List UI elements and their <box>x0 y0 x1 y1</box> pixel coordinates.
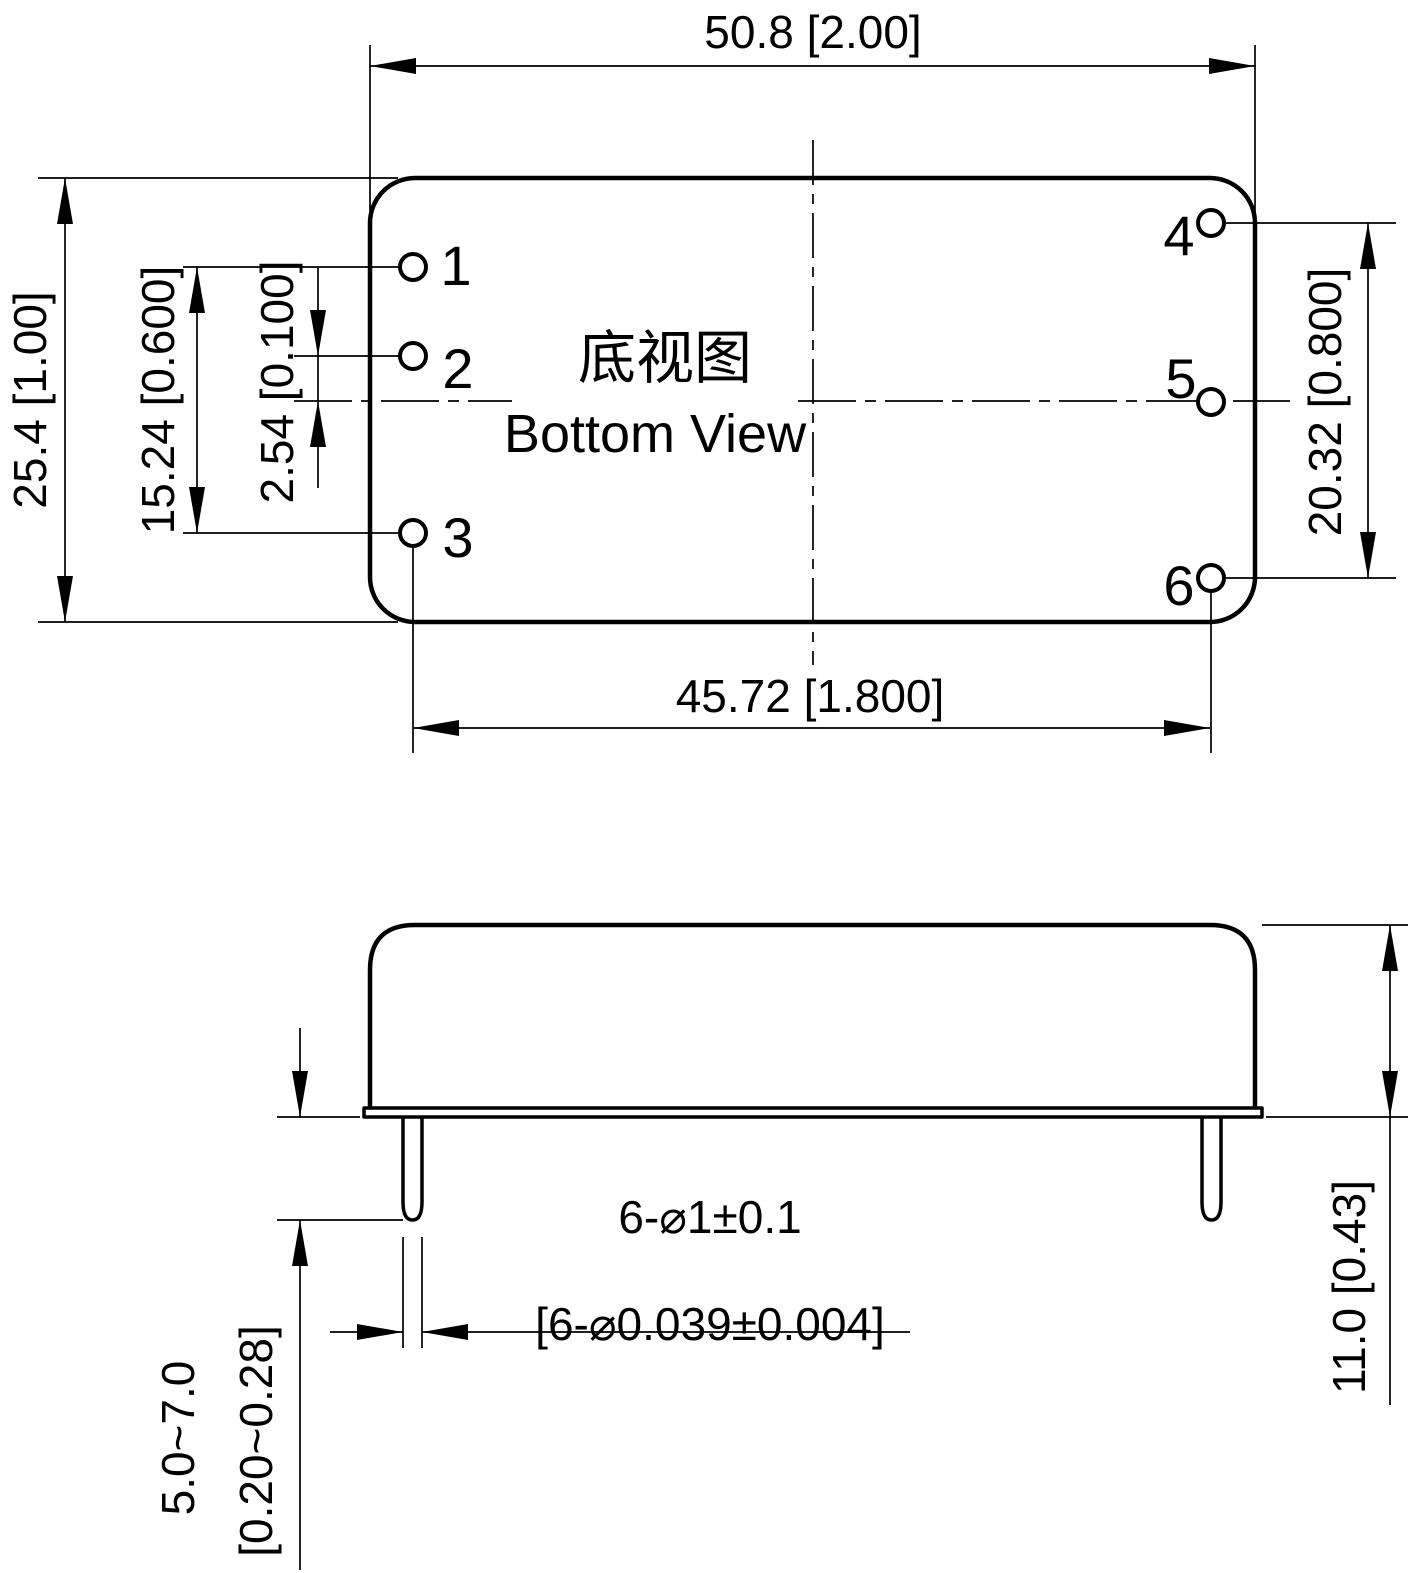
view-title-en: Bottom View <box>504 404 807 464</box>
pin-label-6: 6 <box>1163 554 1194 617</box>
pin-label-5: 5 <box>1165 347 1196 410</box>
dim-body-depth: 25.4 [1.00] <box>4 178 398 622</box>
dim-pin-diameter-mm-text: 6-⌀1±0.1 <box>618 1191 801 1243</box>
dim-pin2-to-centerline: 2.54 [0.100] <box>251 261 400 504</box>
pin-4-hole <box>1198 210 1224 236</box>
dim-pin2-to-centerline-text: 2.54 [0.100] <box>251 261 303 504</box>
dip-module-outline-drawing: 1 2 3 4 5 6 底视图 Bottom View 50.8 [2.00] … <box>0 0 1414 1573</box>
dim-pin-diameter-inch-text: [6-⌀0.039±0.004] <box>535 1298 885 1350</box>
pin-6-hole <box>1198 565 1224 591</box>
dim-pin-length-inch-text: [0.20~0.28] <box>230 1325 282 1556</box>
dim-pin4-to-pin6-text: 20.32 [0.800] <box>1299 268 1351 537</box>
bottom-view: 1 2 3 4 5 6 底视图 Bottom View 50.8 [2.00] … <box>4 6 1396 753</box>
dim-pin-span-text: 45.72 [1.800] <box>676 670 945 722</box>
pin-5-hole <box>1198 389 1224 415</box>
pin-label-4: 4 <box>1163 204 1194 267</box>
dim-case-height: 11.0 [0.43] <box>1262 925 1408 1405</box>
dim-body-width: 50.8 [2.00] <box>370 6 1255 218</box>
side-view-right-pin <box>1202 1117 1221 1220</box>
dim-body-depth-text: 25.4 [1.00] <box>4 291 56 508</box>
side-view-left-pin <box>403 1117 422 1220</box>
side-view-body-outline <box>370 925 1255 1108</box>
dim-case-height-text: 11.0 [0.43] <box>1323 1180 1375 1394</box>
pin-2-hole <box>400 343 426 369</box>
dim-pin1-to-pin3-text: 15.24 [0.600] <box>132 266 184 535</box>
dim-pin-span: 45.72 [1.800] <box>413 548 1211 753</box>
dim-pin-diameter: 6-⌀1±0.1 [6-⌀0.039±0.004] <box>330 1191 910 1350</box>
pin-1-hole <box>400 254 426 280</box>
view-title-zh: 底视图 <box>578 326 752 391</box>
side-view-base-flange <box>364 1108 1262 1117</box>
pin-label-1: 1 <box>440 234 471 297</box>
pin-3-hole <box>400 520 426 546</box>
pin-label-3: 3 <box>442 506 473 569</box>
mechanical-drawing-page: 1 2 3 4 5 6 底视图 Bottom View 50.8 [2.00] … <box>0 0 1414 1573</box>
dim-pin-length-mm-text: 5.0~7.0 <box>152 1361 204 1516</box>
pin-label-2: 2 <box>442 337 473 400</box>
dim-body-width-text: 50.8 [2.00] <box>704 6 921 58</box>
side-view: 5.0~7.0 [0.20~0.28] 6-⌀1±0.1 [6-⌀0.039±0… <box>152 925 1408 1570</box>
